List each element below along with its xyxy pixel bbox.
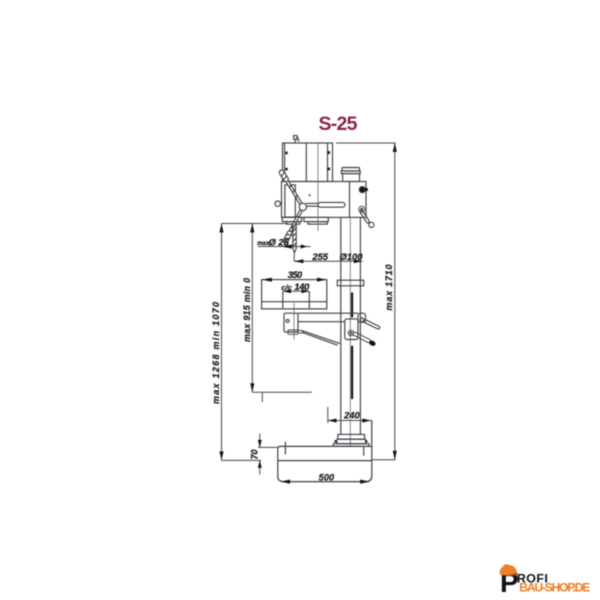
svg-text:Ø100: Ø100 — [340, 251, 364, 262]
svg-text:500: 500 — [319, 472, 335, 482]
svg-text:Ø 25: Ø 25 — [269, 237, 290, 248]
svg-text:max 1710: max 1710 — [384, 265, 394, 311]
svg-text:140: 140 — [294, 282, 310, 293]
svg-text:BAU-SHOP.DE: BAU-SHOP.DE — [519, 581, 590, 595]
svg-text:c/c: c/c — [281, 283, 292, 292]
svg-text:255: 255 — [311, 251, 328, 262]
svg-text:S-25: S-25 — [319, 113, 358, 135]
svg-text:max 1268 min 1070: max 1268 min 1070 — [211, 302, 221, 404]
svg-text:350: 350 — [288, 269, 303, 280]
svg-text:70: 70 — [249, 449, 259, 459]
svg-text:max 915 min 0: max 915 min 0 — [242, 278, 252, 342]
svg-text:240: 240 — [343, 410, 360, 420]
